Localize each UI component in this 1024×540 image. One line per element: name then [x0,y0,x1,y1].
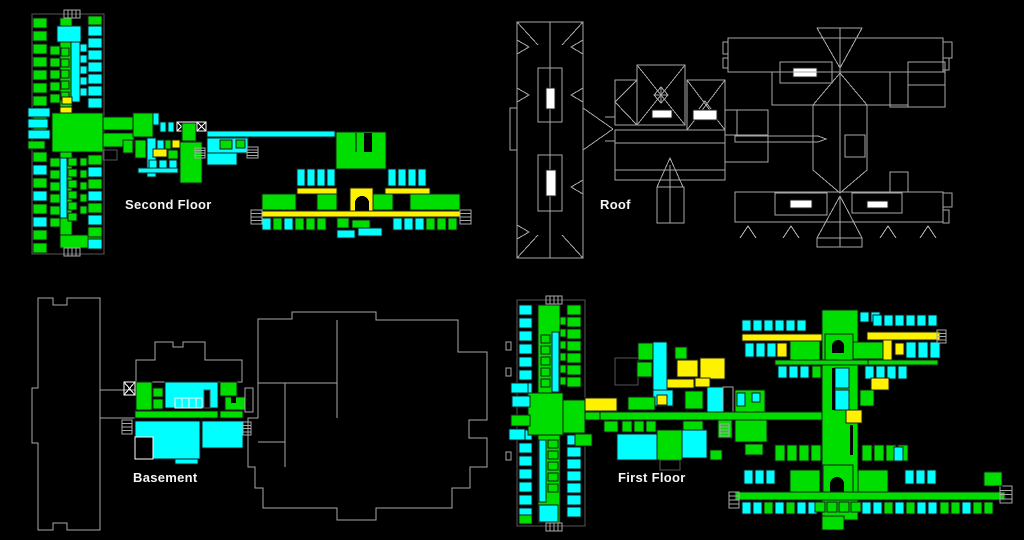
floor-label-basement: Basement [133,470,198,485]
floor-label-first-floor: First Floor [618,470,686,485]
floor-plan-first-floor [506,296,1012,531]
floor-label-roof: Roof [600,197,631,212]
floor-plan-second-floor [28,10,471,256]
floor-plan-basement [32,298,487,530]
floor-plan-drawing [0,0,1024,540]
floor-label-second-floor: Second Floor [125,197,212,212]
floor-plan-roof [510,22,952,258]
cad-viewport: Second Floor Roof Basement First Floor [0,0,1024,540]
